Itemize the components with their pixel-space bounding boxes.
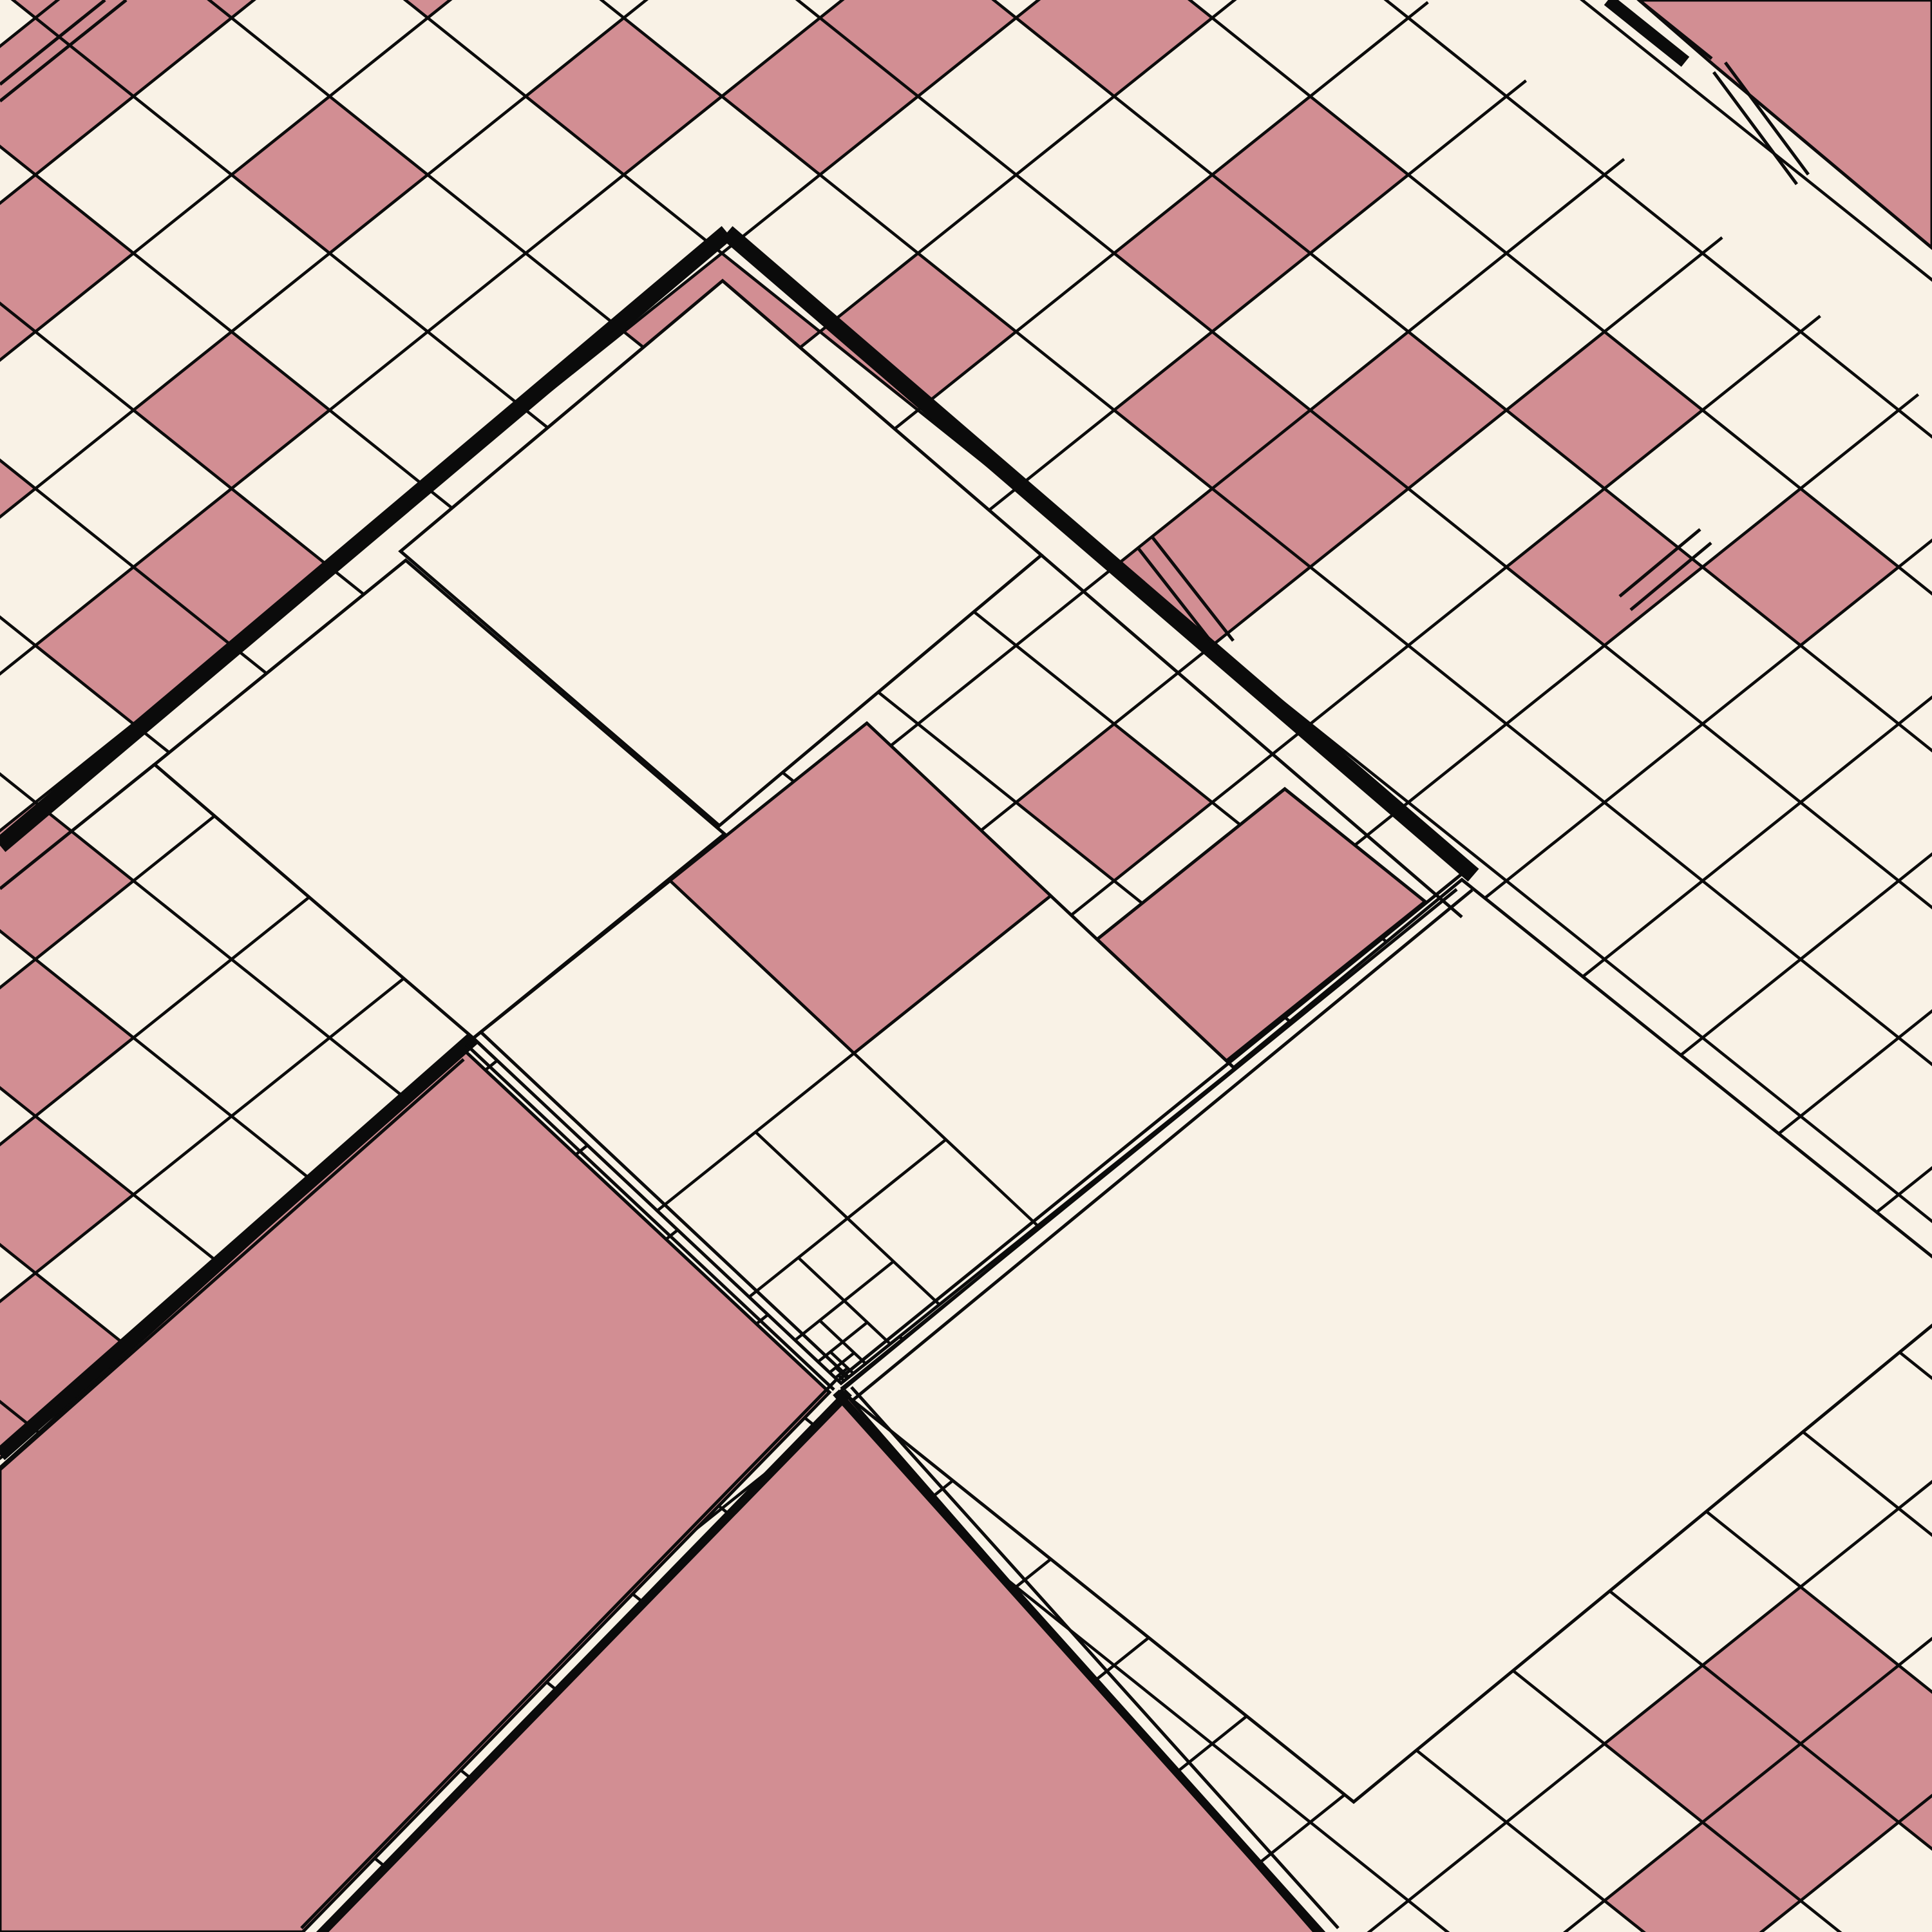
artwork-svg: [0, 0, 1932, 1932]
generative-artwork: [0, 0, 1932, 1932]
